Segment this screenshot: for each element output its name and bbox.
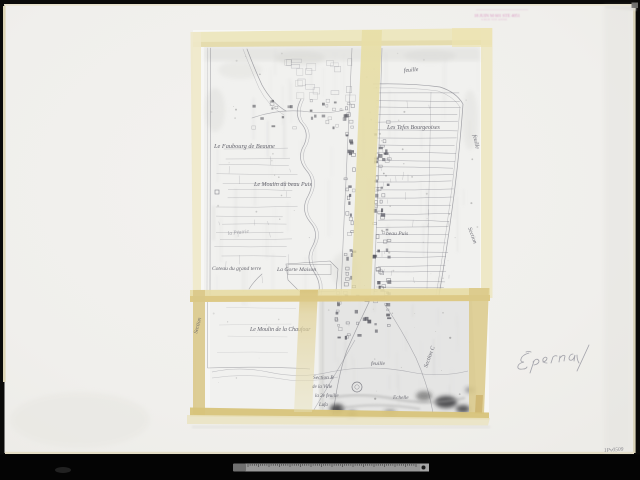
- svg-text:Coteau du grand terre: Coteau du grand terre: [212, 266, 262, 272]
- svg-text:4 RUE STE ANNE: 4 RUE STE ANNE: [481, 18, 507, 22]
- svg-text:Les Tefes Bourgeoises: Les Tefes Bourgeoises: [386, 124, 441, 131]
- svg-text:Section B: Section B: [313, 375, 334, 381]
- svg-text:Le Faubourg de Beaune: Le Faubourg de Beaune: [213, 143, 275, 150]
- svg-text:Lufa: Lufa: [318, 403, 328, 408]
- svg-text:Le Moulin du beau Puis: Le Moulin du beau Puis: [253, 182, 312, 188]
- svg-text:feuille: feuille: [371, 360, 385, 367]
- svg-text:de la Ville: de la Ville: [312, 385, 333, 390]
- svg-text:feuille: feuille: [404, 66, 419, 74]
- svg-text:beau Puis: beau Puis: [386, 231, 408, 237]
- svg-text:La Gorte Maison: La Gorte Maison: [276, 267, 316, 273]
